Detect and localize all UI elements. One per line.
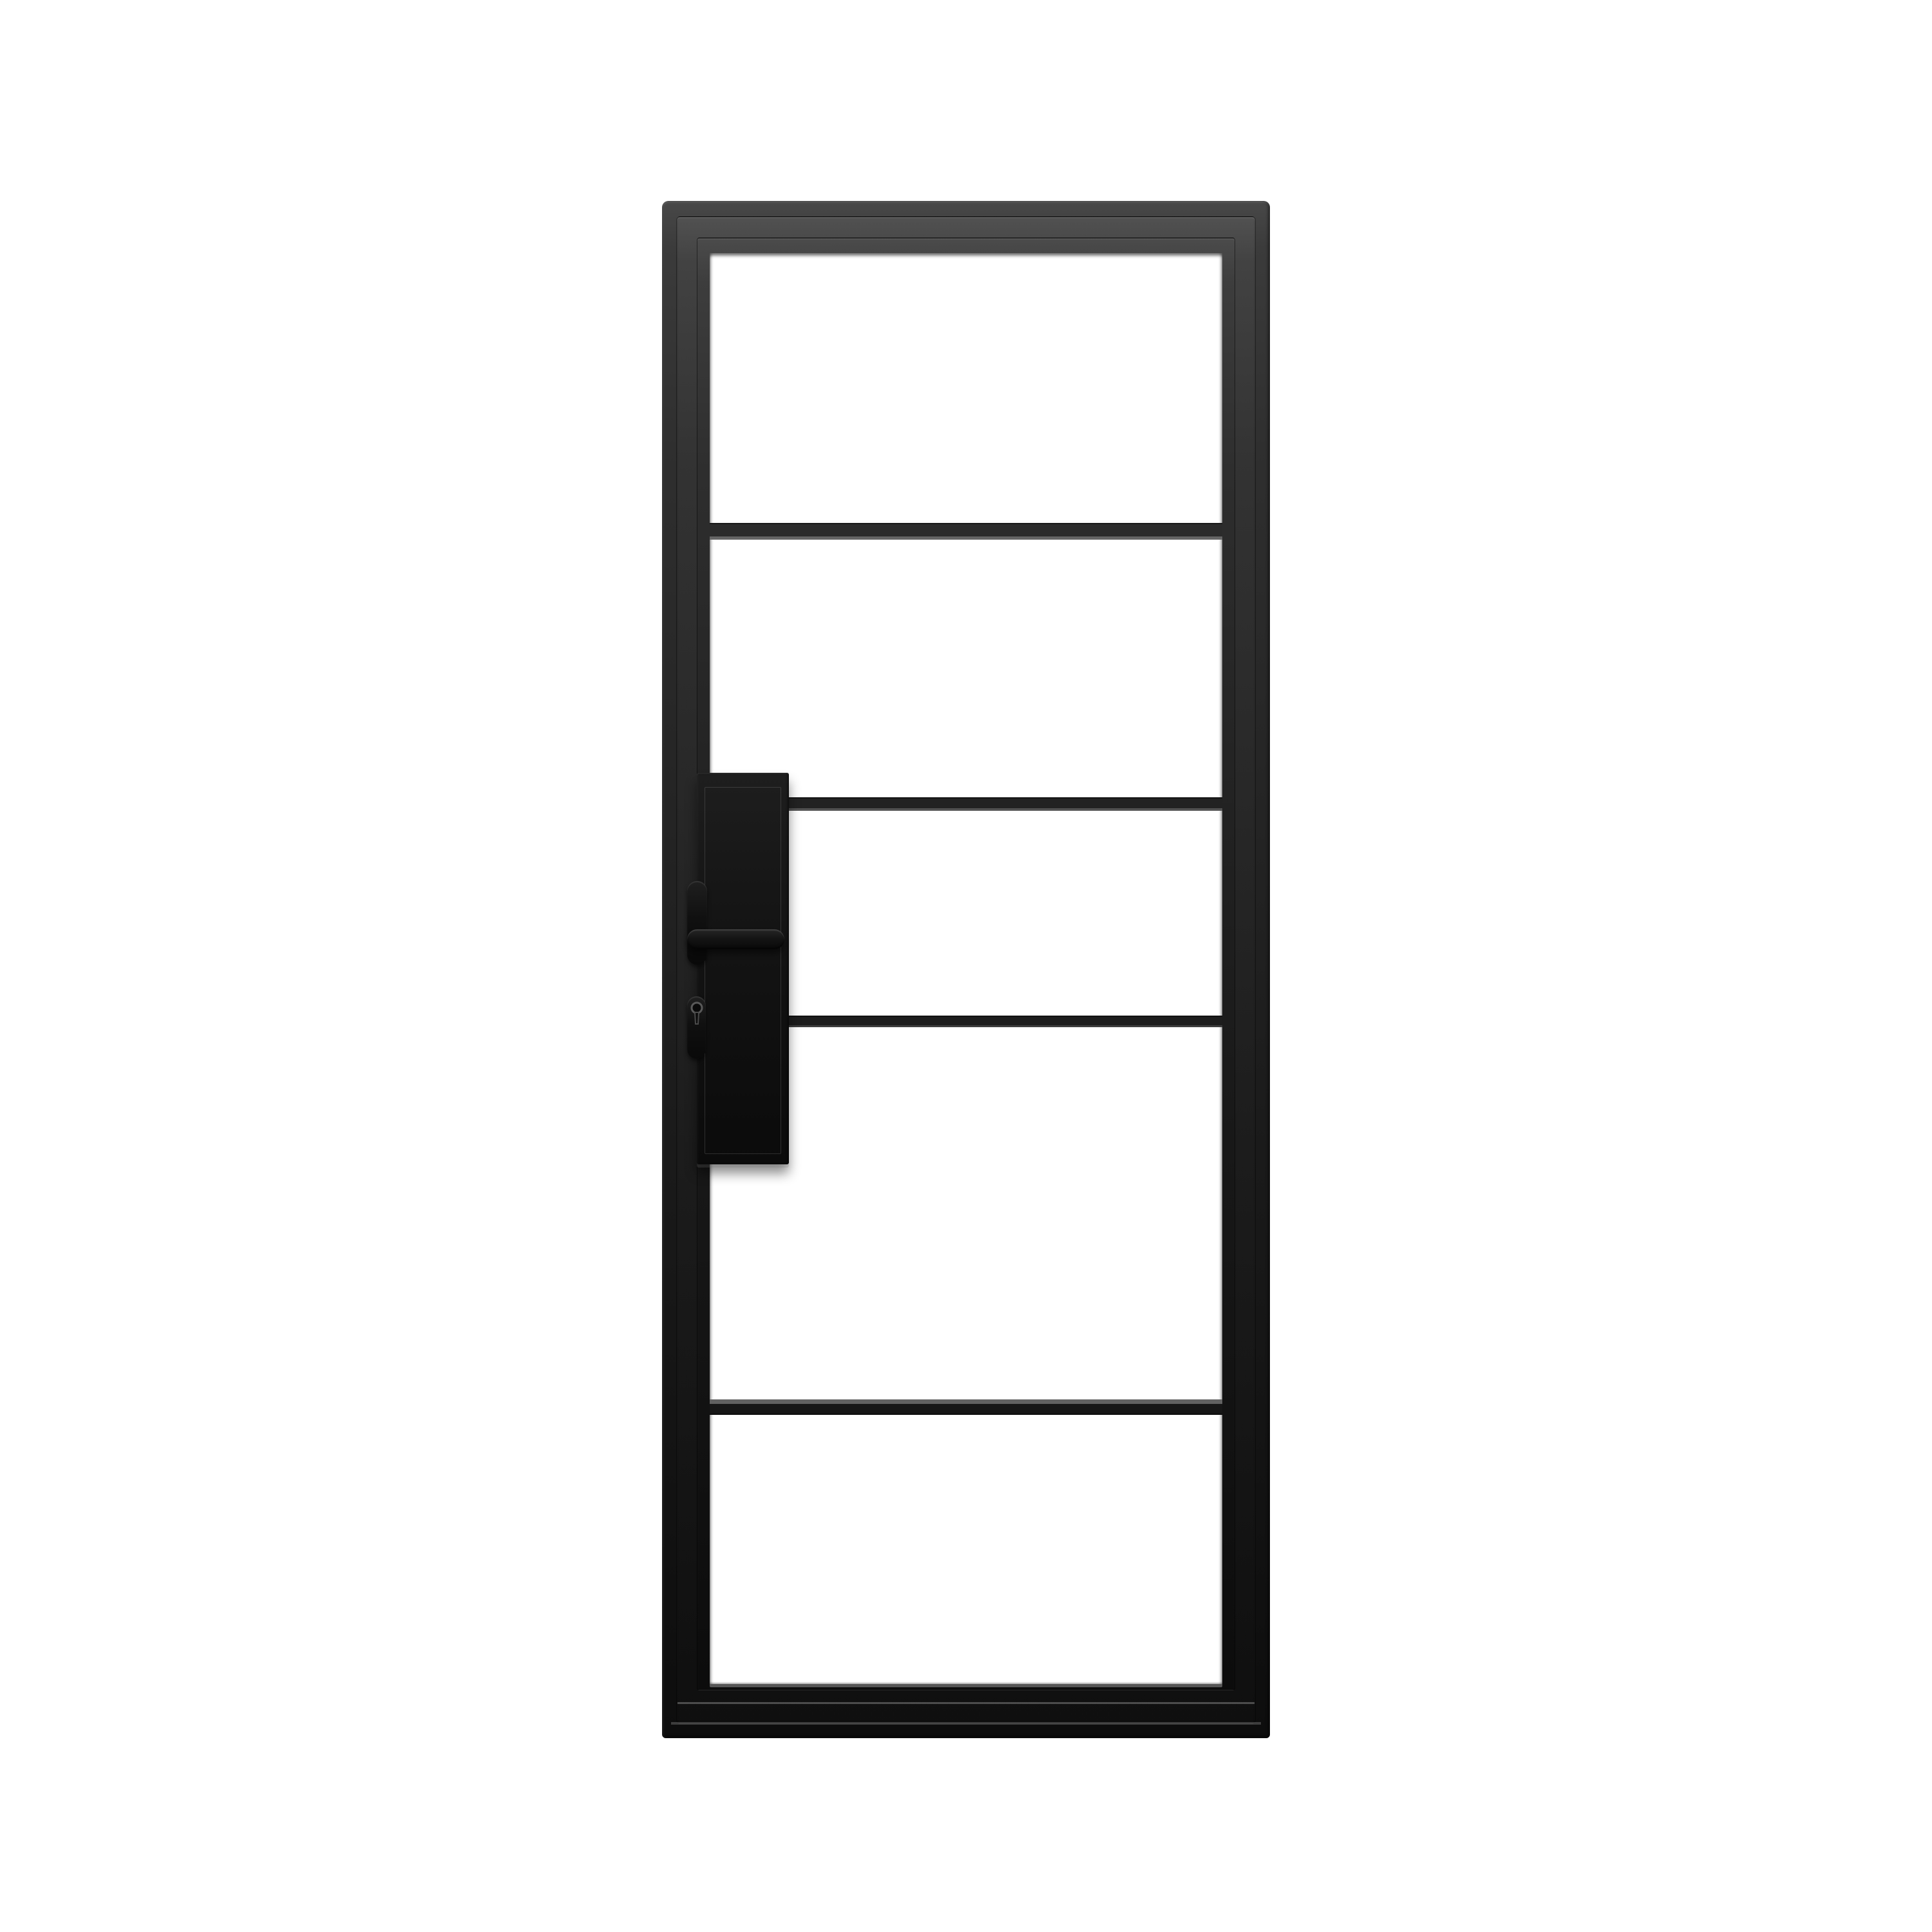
handle-lever: [687, 929, 784, 949]
keyhole-icon: [688, 1000, 705, 1032]
bottom-rail-seam-1: [677, 1702, 1255, 1704]
handle-backplate: [687, 881, 707, 965]
bottom-rail-seam-2: [671, 1722, 1261, 1725]
glass-pane-2: [710, 540, 1222, 797]
glass-pane-5: [710, 1415, 1222, 1684]
glazing-bar-4: [710, 1399, 1222, 1415]
lock-panel: [697, 773, 789, 1164]
glass-pane-1: [710, 253, 1222, 523]
keyhole-escutcheon: [687, 996, 706, 1059]
steel-door: [662, 201, 1270, 1738]
glazing-bar-1: [710, 523, 1222, 540]
product-image-canvas: [0, 0, 1932, 1932]
